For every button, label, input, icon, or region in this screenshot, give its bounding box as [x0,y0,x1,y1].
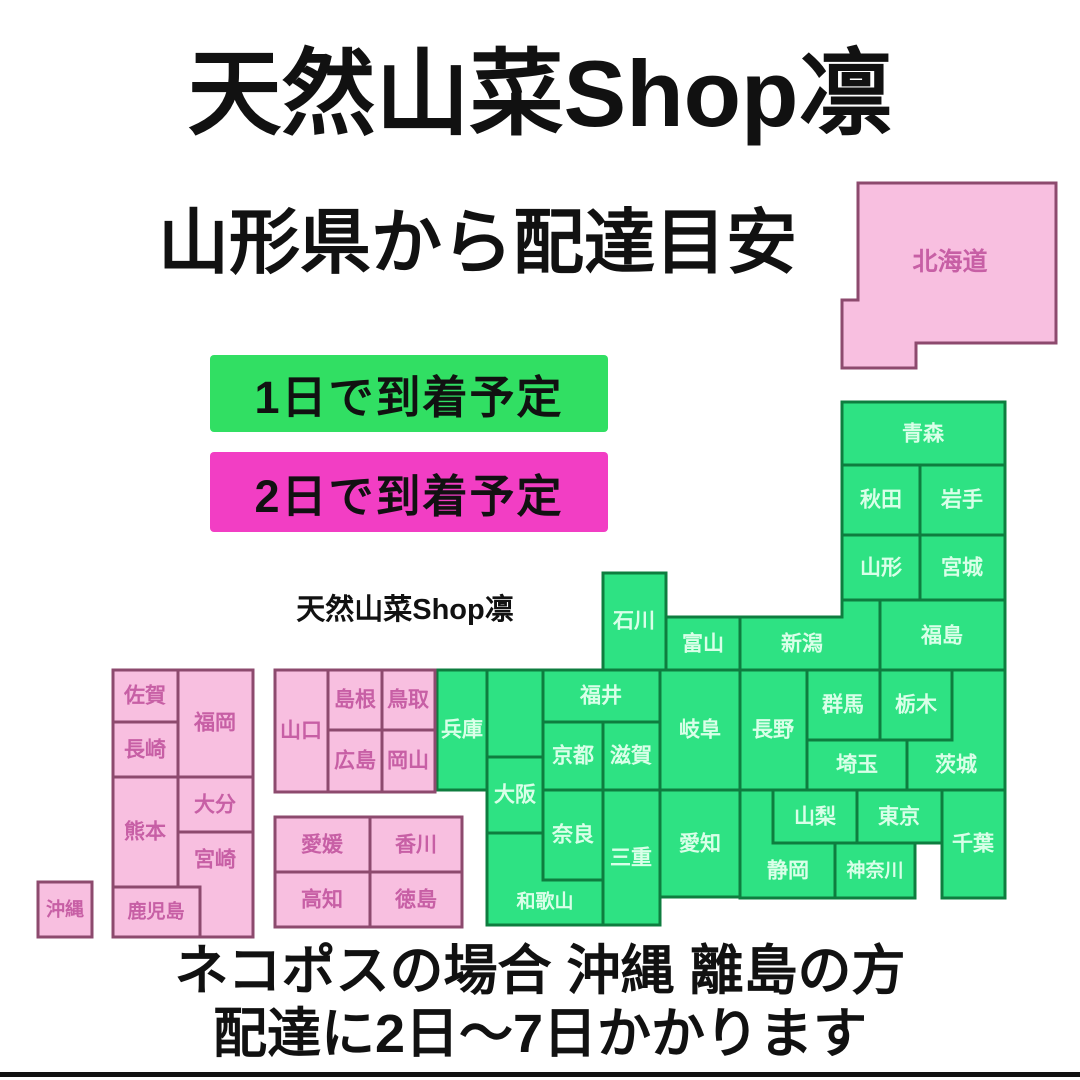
svg-text:福島: 福島 [920,624,963,648]
svg-text:長野: 長野 [752,719,794,742]
svg-text:鹿児島: 鹿児島 [127,900,184,923]
svg-text:愛知: 愛知 [679,832,721,856]
svg-text:石川: 石川 [612,610,655,633]
svg-text:京都: 京都 [552,744,594,768]
prefecture-hiroshima: 広島 [328,730,382,792]
prefecture-tokushima: 徳島 [370,872,462,927]
prefecture-yamaguchi: 山口 [275,670,328,792]
prefecture-aomori: 青森 [842,402,1005,465]
svg-text:宮崎: 宮崎 [194,848,236,872]
svg-text:和歌山: 和歌山 [516,890,573,913]
svg-text:熊本: 熊本 [124,820,166,844]
prefecture-saitama: 埼玉 [807,740,907,790]
svg-text:大阪: 大阪 [494,784,537,807]
svg-text:島根: 島根 [334,688,376,712]
prefecture-kagawa: 香川 [370,817,462,872]
svg-text:山口: 山口 [280,720,322,743]
prefecture-yamagata: 山形 [842,535,920,600]
svg-text:広島: 広島 [334,749,376,773]
svg-text:兵庫: 兵庫 [441,718,483,742]
delivery-infographic: 天然山菜Shop凛 山形県から配達目安 1日で到着予定 2日で到着予定 天然山菜… [0,0,1080,1080]
prefecture-fukui: 福井 [543,670,660,722]
svg-text:奈良: 奈良 [551,823,594,847]
svg-text:東京: 東京 [878,805,920,829]
svg-text:岐阜: 岐阜 [679,718,721,742]
prefecture-ehime: 愛媛 [275,817,370,872]
prefecture-akita: 秋田 [842,465,920,535]
prefecture-kanagawa: 神奈川 [835,843,915,898]
svg-text:長崎: 長崎 [124,739,166,762]
prefecture-tottori: 鳥取 [382,670,435,730]
prefecture-ishikawa: 石川 [603,573,666,670]
svg-text:宮城: 宮城 [941,556,983,580]
svg-text:佐賀: 佐賀 [123,684,166,708]
svg-text:福岡: 福岡 [193,712,236,735]
prefecture-shimane: 島根 [328,670,382,730]
svg-text:沖縄: 沖縄 [46,898,84,921]
prefecture-okayama: 岡山 [382,730,435,792]
footer-line-1: ネコポスの場合 沖縄 離島の方 [0,940,1080,1003]
svg-text:北海道: 北海道 [912,247,987,276]
prefecture-nagano: 長野 [740,670,807,790]
prefecture-hokkaido: 北海道 [842,183,1056,368]
svg-text:青森: 青森 [902,423,945,446]
prefecture-kagoshima: 鹿児島 [113,887,200,937]
prefecture-toyama: 富山 [666,617,740,670]
svg-text:神奈川: 神奈川 [846,859,903,882]
prefecture-hyogo: 兵庫 [437,670,487,790]
svg-text:愛媛: 愛媛 [301,833,344,857]
svg-text:千葉: 千葉 [952,833,995,856]
prefecture-niigata: 新潟 [740,600,880,670]
svg-text:群馬: 群馬 [822,693,864,717]
prefecture-kochi: 高知 [275,872,370,927]
footer-note: ネコポスの場合 沖縄 離島の方 配達に2日〜7日かかります [0,940,1080,1066]
svg-text:山梨: 山梨 [794,806,836,829]
svg-text:富山: 富山 [682,632,724,656]
svg-text:埼玉: 埼玉 [836,754,878,777]
prefecture-okinawa: 沖縄 [38,882,92,937]
prefecture-nagasaki: 長崎 [113,722,178,777]
svg-text:徳島: 徳島 [394,888,437,912]
svg-text:静岡: 静岡 [767,859,809,883]
prefecture-miyagi: 宮城 [920,535,1005,600]
cell-unlabeled-kinki-north [487,670,543,757]
prefecture-kyoto: 京都 [543,722,603,790]
prefecture-fukushima: 福島 [880,600,1005,670]
svg-text:鳥取: 鳥取 [387,688,429,712]
svg-text:秋田: 秋田 [860,489,902,512]
svg-text:福井: 福井 [579,685,622,708]
bottom-divider [0,1072,1080,1077]
footer-line-2: 配達に2日〜7日かかります [0,1003,1080,1066]
prefecture-chiba: 千葉 [942,790,1005,898]
prefecture-saga: 佐賀 [113,670,178,722]
svg-text:新潟: 新潟 [781,632,823,656]
prefecture-fukuoka: 福岡 [178,670,253,777]
svg-text:岩手: 岩手 [940,488,983,512]
prefecture-aichi: 愛知 [660,790,740,897]
svg-text:滋賀: 滋賀 [610,744,652,768]
prefecture-nara: 奈良 [543,790,603,880]
prefecture-kumamoto: 熊本 [113,777,178,887]
prefecture-gunma: 群馬 [807,670,880,740]
prefecture-osaka: 大阪 [487,757,543,833]
prefecture-shiga: 滋賀 [603,722,660,790]
prefecture-mie: 三重 [603,790,660,925]
svg-text:大分: 大分 [194,794,236,817]
prefecture-yamanashi: 山梨 [773,790,857,843]
svg-text:三重: 三重 [610,847,652,870]
prefecture-gifu: 岐阜 [660,670,740,790]
svg-text:栃木: 栃木 [895,693,938,717]
prefecture-tochigi: 栃木 [880,670,952,740]
svg-text:岡山: 岡山 [387,750,429,773]
svg-text:香川: 香川 [395,834,437,857]
prefecture-iwate: 岩手 [920,465,1005,535]
japan-tile-map: 北海道 青森 秋田 岩手 山形 宮城 福島 新潟 [0,0,1080,1080]
svg-text:茨城: 茨城 [935,753,977,777]
prefecture-tokyo: 東京 [857,790,942,843]
prefecture-oita: 大分 [178,777,253,832]
svg-text:高知: 高知 [301,888,343,912]
svg-text:山形: 山形 [860,557,902,580]
